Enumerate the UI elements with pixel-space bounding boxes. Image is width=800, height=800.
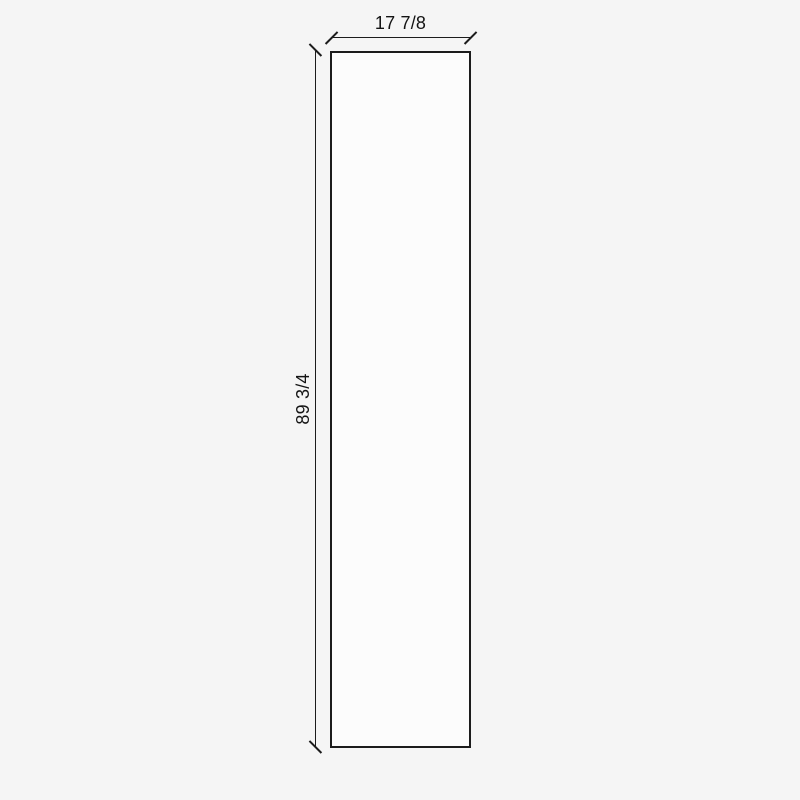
drawing-canvas: 17 7/8 89 3/4 <box>0 0 800 800</box>
height-dimension-label: 89 3/4 <box>292 369 314 429</box>
width-dimension-line <box>331 37 470 39</box>
height-dimension-line <box>315 50 317 747</box>
width-dimension-label: 17 7/8 <box>330 12 471 34</box>
panel-outline <box>330 51 471 748</box>
